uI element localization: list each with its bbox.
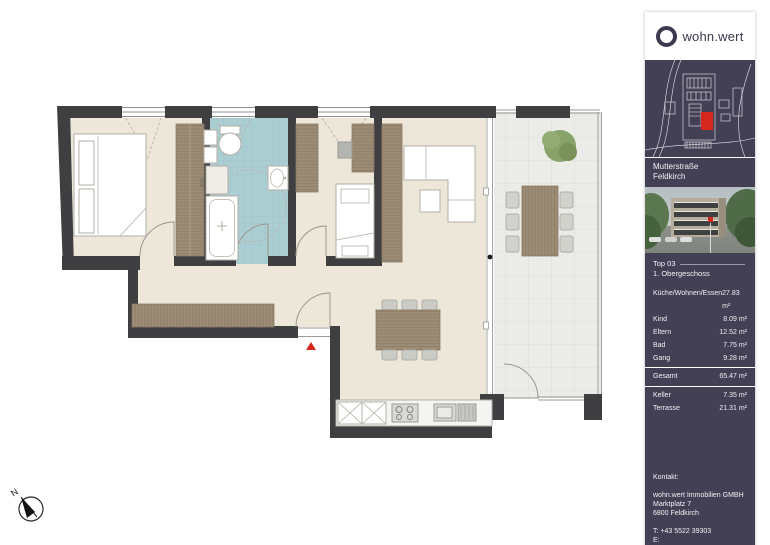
wardrobe — [296, 124, 318, 192]
area-row: Keller7.35 m² — [653, 389, 747, 402]
unit-floor: 1. Obergeschoss — [653, 269, 747, 279]
location-street: Mutterstraße — [653, 162, 747, 172]
contact-city: 6800 Feldkirch — [653, 509, 747, 518]
toilet — [219, 126, 241, 155]
area-row: Gang9.28 m² — [653, 352, 747, 365]
kitchen-sink — [434, 404, 476, 421]
site-map — [645, 60, 755, 158]
north-label: N — [9, 487, 20, 499]
dining-table — [376, 310, 440, 350]
logo-text: wohn.wert — [682, 29, 743, 44]
area-total-row: Gesamt65.47 m² — [653, 370, 747, 384]
floorplan-sheet: WM — [0, 0, 770, 545]
window-kind — [318, 106, 370, 118]
area-row: Terrasse21.31 m² — [653, 402, 747, 415]
info-sidebar: wohn.wert — [645, 12, 755, 531]
window-eltern — [122, 106, 165, 118]
single-bed — [336, 184, 374, 258]
building-photo — [645, 187, 755, 253]
door-pivot-dot — [488, 255, 493, 260]
wm-label: WM — [200, 178, 206, 187]
tall-cabinet — [382, 124, 402, 262]
cabinet-x — [338, 402, 386, 424]
unit-connector — [680, 264, 745, 265]
unit-marker — [708, 217, 713, 222]
entrance-arrow — [306, 342, 316, 350]
window-bad — [212, 106, 255, 118]
cooktop — [392, 404, 418, 422]
contact-company: wohn.wert Immobilien GMBH — [653, 491, 747, 500]
contact-heading: Kontakt: — [653, 473, 747, 482]
radiator — [338, 142, 352, 158]
contact-email[interactable]: E: office@wohnwertimmobilien.at — [653, 536, 747, 545]
divider — [645, 367, 755, 368]
area-row: Bad7.75 m² — [653, 339, 747, 352]
logo-ring-icon — [656, 26, 677, 47]
windows — [122, 106, 370, 118]
unit-label: Top 03 — [653, 259, 676, 269]
dining-area — [376, 300, 440, 360]
area-row: Kind8.09 m² — [653, 313, 747, 326]
bathtub — [206, 196, 238, 260]
photo-building — [671, 198, 726, 238]
contact-street: Marktplatz 7 — [653, 500, 747, 509]
hall-wardrobe — [132, 304, 274, 327]
north-compass-icon: N — [9, 487, 43, 521]
location-label: Mutterstraße Feldkirch — [645, 158, 755, 187]
floor-plan: WM — [0, 0, 645, 545]
location-city: Feldkirch — [653, 172, 747, 182]
unit-block: Top 03 1. Obergeschoss — [645, 253, 755, 281]
highlighted-building — [701, 112, 713, 130]
kitchen — [336, 400, 492, 426]
eltern-room — [74, 124, 204, 256]
area-row: Küche/Wohnen/Essen27.83 m² — [653, 287, 747, 313]
unit-connector-line — [710, 223, 711, 253]
sink — [268, 166, 288, 190]
contact-phone: T: +43 5522 39303 — [653, 527, 747, 536]
area-row: Eltern12.52 m² — [653, 326, 747, 339]
logo: wohn.wert — [645, 12, 755, 60]
contact-block: Kontakt: wohn.wert Immobilien GMBH Markt… — [645, 473, 755, 545]
coffee-table — [420, 190, 440, 212]
outdoor-table — [522, 186, 558, 256]
divider — [645, 386, 755, 387]
wardrobe — [352, 124, 374, 172]
area-table: Küche/Wohnen/Essen27.83 m² Kind8.09 m² E… — [645, 281, 755, 415]
